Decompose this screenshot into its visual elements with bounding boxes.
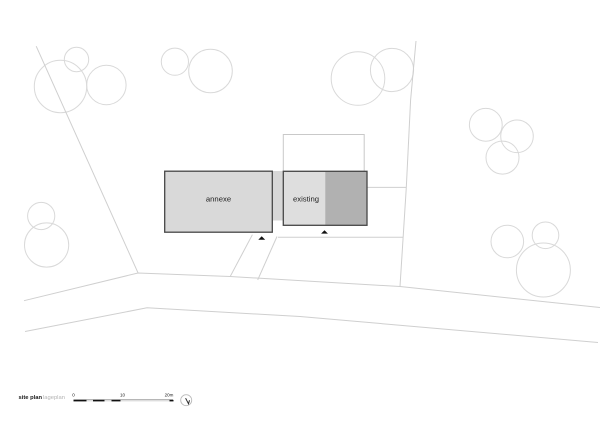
svg-text:20m: 20m [165, 393, 174, 398]
svg-text:10: 10 [120, 393, 126, 398]
svg-text:annexe: annexe [206, 195, 231, 204]
svg-text:lageplan: lageplan [43, 395, 65, 401]
svg-text:existing: existing [293, 194, 319, 203]
svg-text:site plan: site plan [19, 395, 43, 401]
